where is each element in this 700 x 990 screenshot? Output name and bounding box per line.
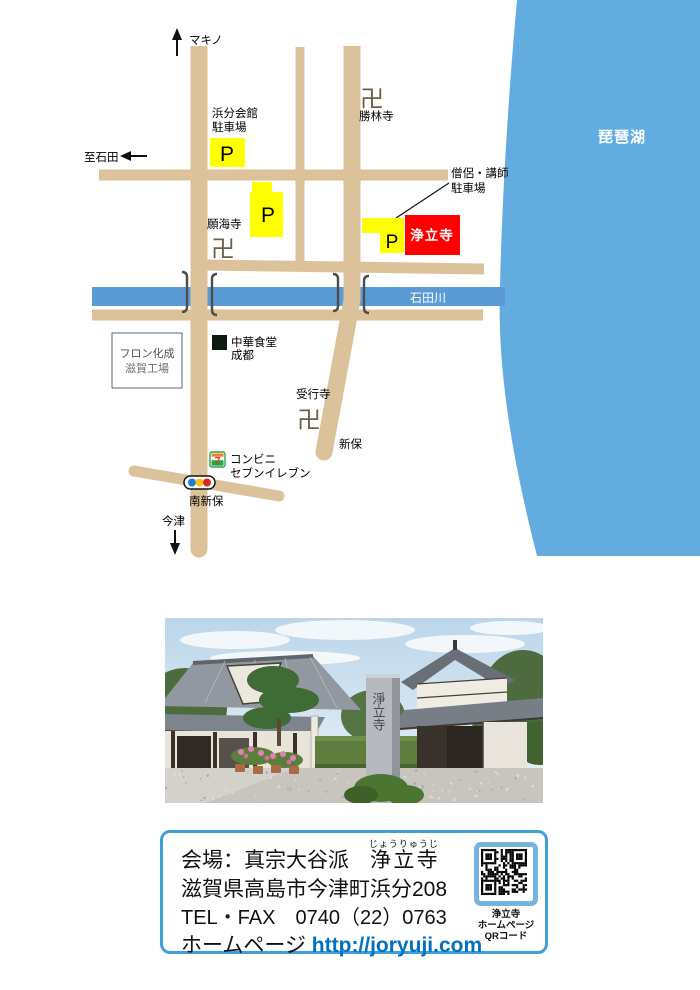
parking-letter-3: P [386, 232, 399, 253]
swastika-shorinji-icon: 卍 [360, 86, 384, 113]
traffic-light-icon [184, 476, 215, 489]
ishida-dest-label: 至石田 [84, 152, 119, 164]
restaurant-label-1: 中華食堂 [231, 335, 277, 349]
ishida-river-label: 石田川 [410, 291, 446, 305]
makino-label: マキノ [189, 35, 223, 47]
venue-temple-name: 浄立寺 [369, 849, 439, 872]
access-map: 琵琶湖 石田川 [0, 0, 700, 580]
restaurant-label-2: 成都 [231, 349, 254, 362]
monk-parking-label-1: 僧侶・講師 [451, 166, 509, 180]
swastika-jugyoji-icon: 卍 [297, 407, 321, 434]
restaurant-marker [212, 335, 227, 350]
north-arrow [172, 28, 182, 56]
conbini-label-2: セブンイレブン [230, 466, 311, 480]
qr-caption-2: ホームページ [474, 920, 538, 931]
qr-block: 浄立寺 ホームページ QRコード [474, 842, 538, 942]
qr-code [474, 842, 538, 906]
gankaiji-label: 願海寺 [207, 217, 242, 231]
venue-info-text: 会場：真宗大谷派 浄立寺じょうりゅうじ 滋賀県高島市今津町浜分208 TEL・F… [181, 835, 481, 960]
homepage-line: ホームページ http://joryuji.com [181, 932, 481, 960]
jugyoji-label: 受行寺 [296, 388, 331, 401]
address-line: 滋賀県高島市今津町浜分208 [181, 876, 481, 904]
parking-letter-2: P [261, 204, 275, 227]
factory-label-2: 滋賀工場 [125, 362, 169, 375]
factory-box [112, 333, 182, 388]
monk-parking-pointer-line [396, 183, 449, 218]
homepage-url-link[interactable]: http://joryuji.com [312, 934, 482, 957]
conbini-label-1: コンビニ [230, 453, 276, 466]
venue-line: 会場：真宗大谷派 浄立寺じょうりゅうじ [181, 839, 481, 876]
monument-inscription: 淨立寺 [371, 692, 386, 731]
venue-info-box: 会場：真宗大谷派 浄立寺じょうりゅうじ 滋賀県高島市今津町浜分208 TEL・F… [160, 830, 548, 954]
minami-shinbo-label: 南新保 [189, 494, 224, 508]
venue-temple-furigana: じょうりゅうじ [369, 839, 439, 849]
seven-eleven-icon: 7 [210, 452, 225, 468]
homepage-label: ホームページ [181, 934, 312, 957]
venue-prefix: 会場：真宗大谷派 [181, 849, 370, 872]
tel-fax-line: TEL・FAX 0740（22）0763 [181, 904, 481, 932]
svg-text:7: 7 [214, 456, 220, 468]
qr-caption-3: QRコード [474, 931, 538, 942]
hall-parking-label-1: 浜分会館 [212, 106, 258, 120]
hall-parking-label-2: 駐車場 [212, 120, 247, 134]
road-above-river [201, 265, 484, 269]
parking-letter-1: P [220, 143, 234, 166]
shorinji-label: 勝林寺 [359, 109, 394, 123]
shinbo-label: 新保 [339, 437, 362, 451]
factory-label-1: フロン化成 [120, 346, 175, 360]
joryuji-destination-label: 浄立寺 [410, 227, 454, 243]
west-arrow [120, 151, 147, 161]
lake-biwa-shape [500, 0, 700, 556]
south-arrow [170, 530, 180, 555]
monk-parking-label-2: 駐車場 [451, 181, 486, 195]
flyer-page: 琵琶湖 石田川 [0, 0, 700, 990]
qr-caption-1: 浄立寺 [474, 909, 538, 920]
lake-biwa-label: 琵琶湖 [598, 129, 646, 146]
imazu-label: 今津 [162, 514, 185, 528]
swastika-gankaiji-icon: 卍 [211, 236, 235, 263]
temple-photo: 淨立寺 [165, 618, 543, 803]
